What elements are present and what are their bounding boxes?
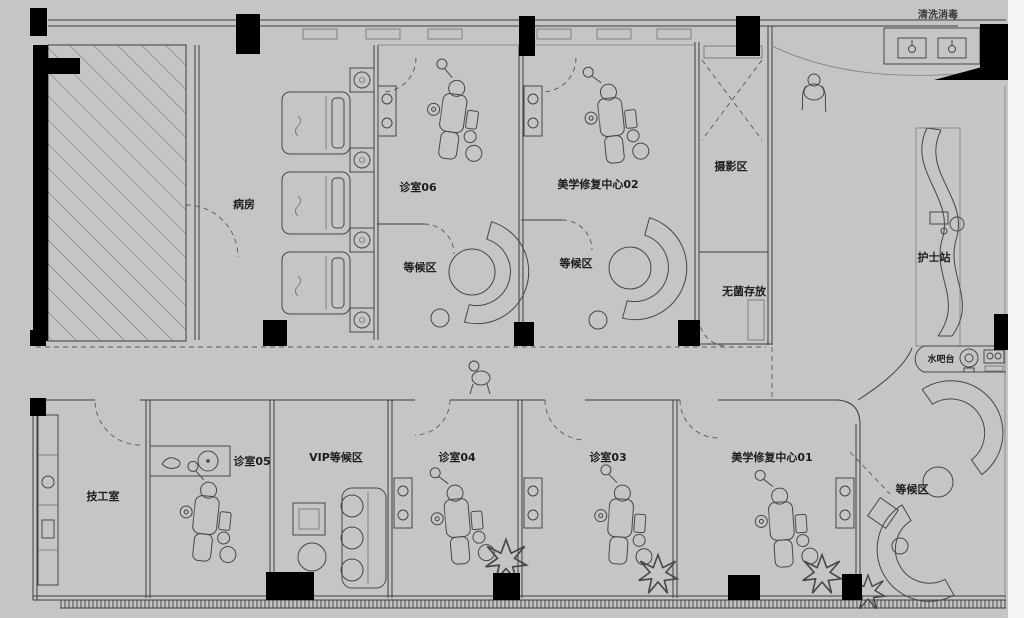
curved-sofa-icon [623,218,687,320]
hatched-void-area [33,45,186,341]
water-bar: 水吧台 [915,346,1006,372]
waiting-top-left-label: 等候区 [403,260,437,274]
person-icon [802,74,826,112]
round-table-icon [298,543,326,571]
technician-room-label: 技工室 [87,489,120,503]
aesthetic-center-01-room: 美学修复中心01 [731,450,854,593]
waiting-top-right-label: 等候区 [559,256,593,270]
nightstand-icon [350,148,374,172]
plant-icon [639,555,677,593]
sink-cabinet-icon [378,86,396,136]
floor-plan-canvas: 病房 诊室06 等候区 美学修复中心02 等候区 摄影区 无菌存放 清洗消毒 [0,0,1024,618]
dental-chair-icon [591,464,658,566]
coffee-machine-icon [960,349,978,367]
bed-icon [282,172,350,234]
clinic-05-label: 诊室05 [233,454,270,468]
ward-label: 病房 [233,197,255,211]
floor-plan-drawing: 病房 诊室06 等候区 美学修复中心02 等候区 摄影区 无菌存放 清洗消毒 [0,0,1024,618]
stool-icon [950,217,964,231]
waiting-lobby-label: 等候区 [895,482,929,496]
clinic-04-room: 诊室04 [394,450,526,580]
clinic-04-label: 诊室04 [438,450,476,464]
clinic-06-label: 诊室06 [399,180,437,194]
stool-icon [431,309,449,327]
sink-cabinet-icon [524,478,542,528]
door-arcs [95,58,727,445]
sink-cabinet-icon [524,86,542,136]
bed-icon [282,252,350,314]
lobby-waiting-area: 等候区 [851,361,1024,618]
nurse-station-label: 护士站 [918,250,951,264]
photo-area-label: 摄影区 [715,159,748,173]
corridor-dashed-lines [36,347,890,494]
round-table-icon [609,247,651,289]
paper-edge [1008,0,1024,618]
nurse-station: 护士站 [916,128,964,346]
dental-chair-icon [580,62,650,166]
round-table-icon [449,249,495,295]
water-bar-label: 水吧台 [927,353,954,365]
faucet-icon [162,458,180,469]
clinic-03-label: 诊室03 [589,450,626,464]
wash-area-label: 清洗消毒 [918,8,958,21]
sink-cabinet-icon [394,478,412,528]
square-table-icon [293,503,325,535]
vip-waiting-room: VIP等候区 [293,450,386,588]
curved-sofa-icon [905,361,1024,476]
technician-room: 技工室 [38,415,120,585]
aesthetic-center-02-label: 美学修复中心02 [557,177,638,191]
person-icon [469,361,490,394]
sink-cabinet-icon [836,478,854,528]
dental-chair-icon [427,463,495,566]
sterile-storage-label: 无菌存放 [721,284,767,298]
sink-icon [938,38,966,58]
clinic-03-room: 诊室03 [524,450,677,593]
nightstand-icon [350,228,374,252]
stool-icon [868,498,899,529]
sterile-storage-room: 无菌存放 [721,284,767,340]
dental-chair-icon [421,58,494,163]
dental-chair-icon [752,467,819,569]
bottom-tick-strip [60,600,1006,608]
lounge-sofa-icon [341,488,386,588]
window-vents [303,29,691,39]
sink-icon [42,476,54,488]
stool-icon [589,311,607,329]
wash-counter: 清洗消毒 [884,8,1008,80]
ward-room: 病房 [233,68,374,332]
nightstand-icon [350,68,374,92]
desk-equipment-icon [930,212,948,224]
aesthetic-center-01-label: 美学修复中心01 [731,450,812,464]
nightstand-icon [350,308,374,332]
interior-walls [146,26,1006,598]
clinic-05-room: 诊室05 [150,446,271,564]
stool-icon [892,538,908,554]
sink-icon [898,38,926,58]
vip-waiting-label: VIP等候区 [309,450,363,464]
photo-area-room: 摄影区 [702,46,762,173]
bed-icon [282,92,350,154]
clinic-06-room: 诊室06 等候区 [378,58,529,327]
aesthetic-center-02-room: 美学修复中心02 等候区 [524,62,687,329]
plant-icon [803,555,841,593]
